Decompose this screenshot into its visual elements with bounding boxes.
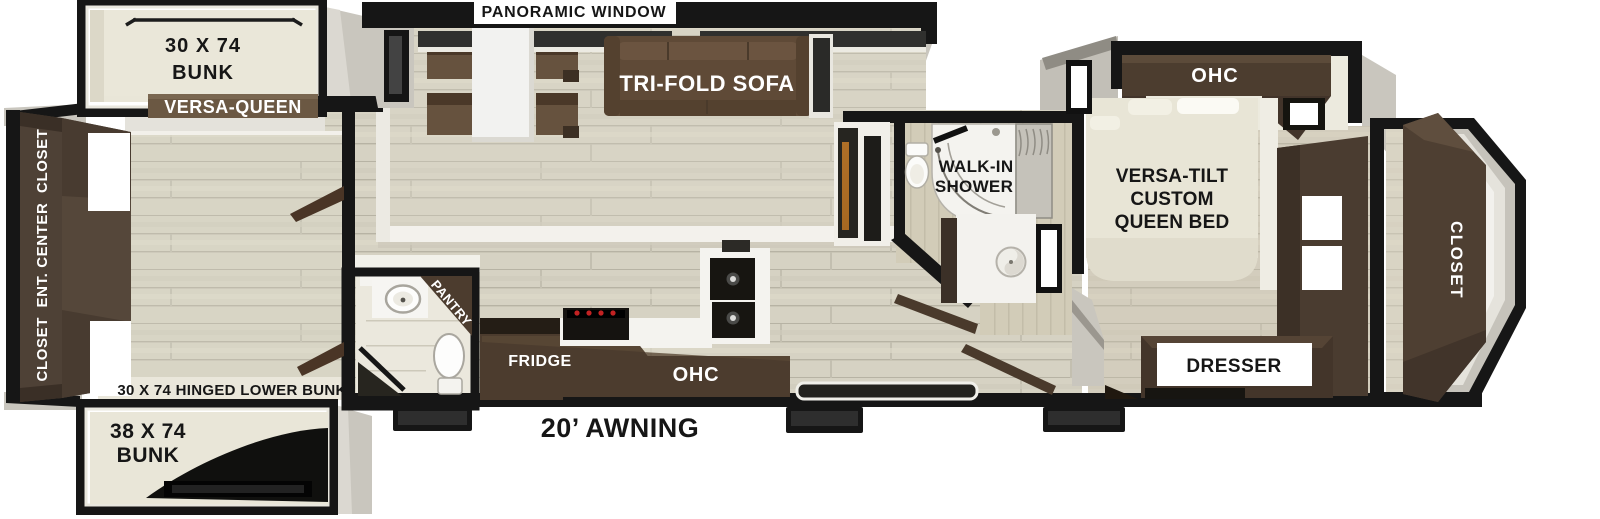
svg-text:SHOWER: SHOWER — [935, 177, 1013, 196]
svg-text:OHC: OHC — [673, 364, 720, 386]
svg-text:VERSA-QUEEN: VERSA-QUEEN — [164, 97, 302, 117]
svg-text:CUSTOM: CUSTOM — [1130, 189, 1213, 210]
svg-text:38 X 74: 38 X 74 — [110, 420, 186, 443]
svg-text:PANORAMIC WINDOW: PANORAMIC WINDOW — [482, 4, 667, 21]
svg-text:DRESSER: DRESSER — [1186, 356, 1281, 377]
svg-text:VERSA-TILT: VERSA-TILT — [1116, 166, 1229, 187]
svg-text:WALK-IN: WALK-IN — [939, 157, 1014, 176]
svg-text:BUNK: BUNK — [172, 62, 234, 84]
svg-text:20’ AWNING: 20’ AWNING — [541, 413, 700, 443]
svg-text:CLOSET: CLOSET — [1447, 221, 1466, 299]
svg-text:BUNK: BUNK — [117, 444, 180, 467]
svg-text:TRI-FOLD SOFA: TRI-FOLD SOFA — [619, 71, 794, 96]
svg-text:OHC: OHC — [1191, 65, 1238, 87]
svg-text:CLOSET ENT. CENTER CLOSET: CLOSET ENT. CENTER CLOSET — [34, 129, 51, 382]
svg-text:30 X 74 HINGED LOWER BUNK: 30 X 74 HINGED LOWER BUNK — [117, 382, 346, 399]
svg-text:30 X 74: 30 X 74 — [165, 35, 241, 57]
svg-text:QUEEN BED: QUEEN BED — [1115, 212, 1230, 233]
svg-text:FRIDGE: FRIDGE — [508, 353, 571, 370]
